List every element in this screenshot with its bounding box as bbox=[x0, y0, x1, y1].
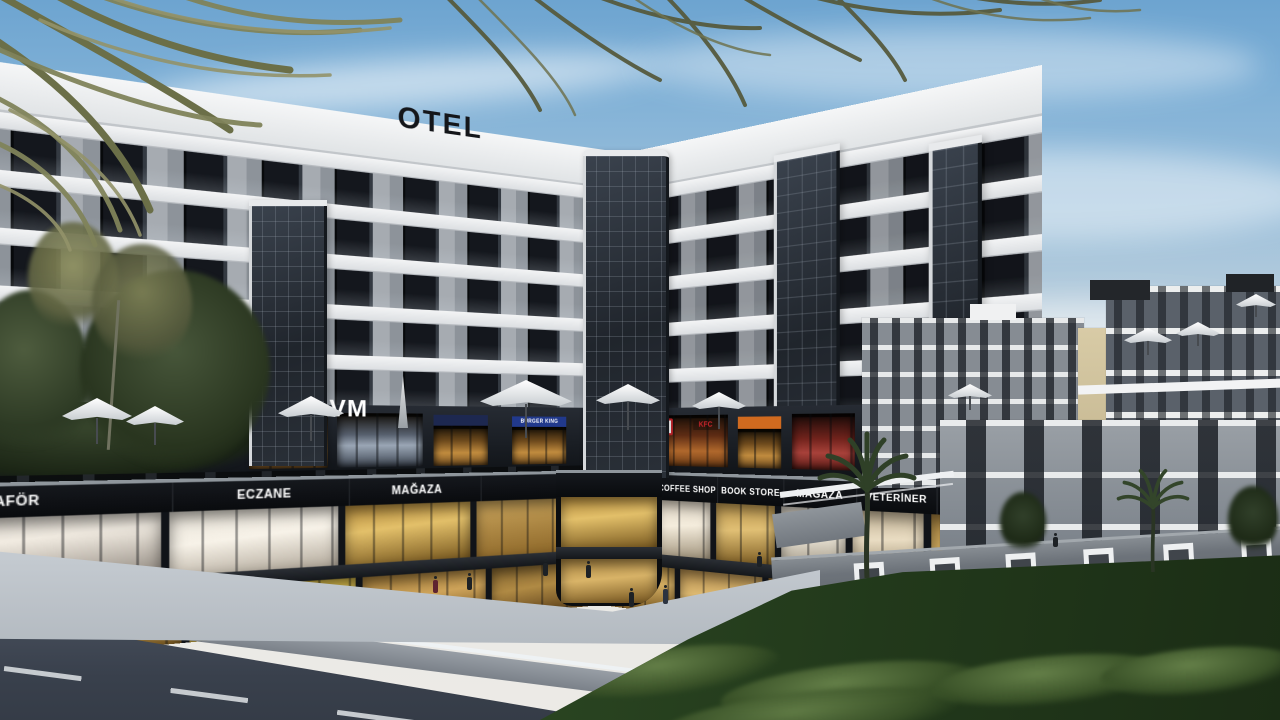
pedestrian bbox=[586, 565, 591, 578]
storefront bbox=[169, 506, 345, 576]
shrub bbox=[1000, 492, 1046, 552]
umbrella bbox=[1124, 328, 1172, 355]
umbrella bbox=[126, 406, 184, 445]
pedestrian bbox=[757, 556, 762, 567]
umbrella bbox=[1236, 294, 1276, 317]
umbrella bbox=[948, 384, 992, 410]
rooftop-pergola bbox=[1090, 280, 1150, 300]
umbrella bbox=[692, 392, 746, 429]
pedestrian bbox=[1053, 537, 1058, 547]
pedestrian bbox=[433, 580, 438, 593]
palm-tree bbox=[1108, 462, 1198, 572]
architectural-render: OTEL BURGER KING AVM bbox=[0, 0, 1280, 720]
mall-corner bbox=[556, 470, 662, 606]
umbrella bbox=[480, 380, 572, 438]
palm-tree bbox=[812, 428, 922, 578]
storefront bbox=[657, 500, 717, 560]
storefront bbox=[345, 501, 476, 564]
pedestrian bbox=[663, 589, 668, 604]
umbrella bbox=[62, 398, 132, 444]
umbrella bbox=[278, 396, 344, 441]
umbrella bbox=[1176, 322, 1220, 346]
sign-book-store: BOOK STORE bbox=[718, 477, 784, 507]
pedestrian bbox=[543, 563, 548, 576]
eucalyptus-foliage bbox=[92, 244, 192, 364]
rooftop-structure bbox=[970, 304, 1016, 320]
pedestrian bbox=[467, 577, 472, 590]
storefront bbox=[716, 503, 781, 566]
umbrella bbox=[596, 384, 660, 430]
terrace-storefront bbox=[738, 429, 781, 469]
shrub bbox=[1228, 486, 1278, 552]
palm-fronds-foreground bbox=[0, 0, 1150, 260]
sign-coffee-shop: COFFEE SHOP bbox=[658, 475, 719, 503]
rooftop-pergola bbox=[1226, 274, 1274, 292]
hedge bbox=[1098, 639, 1280, 702]
pedestrian bbox=[629, 592, 634, 607]
